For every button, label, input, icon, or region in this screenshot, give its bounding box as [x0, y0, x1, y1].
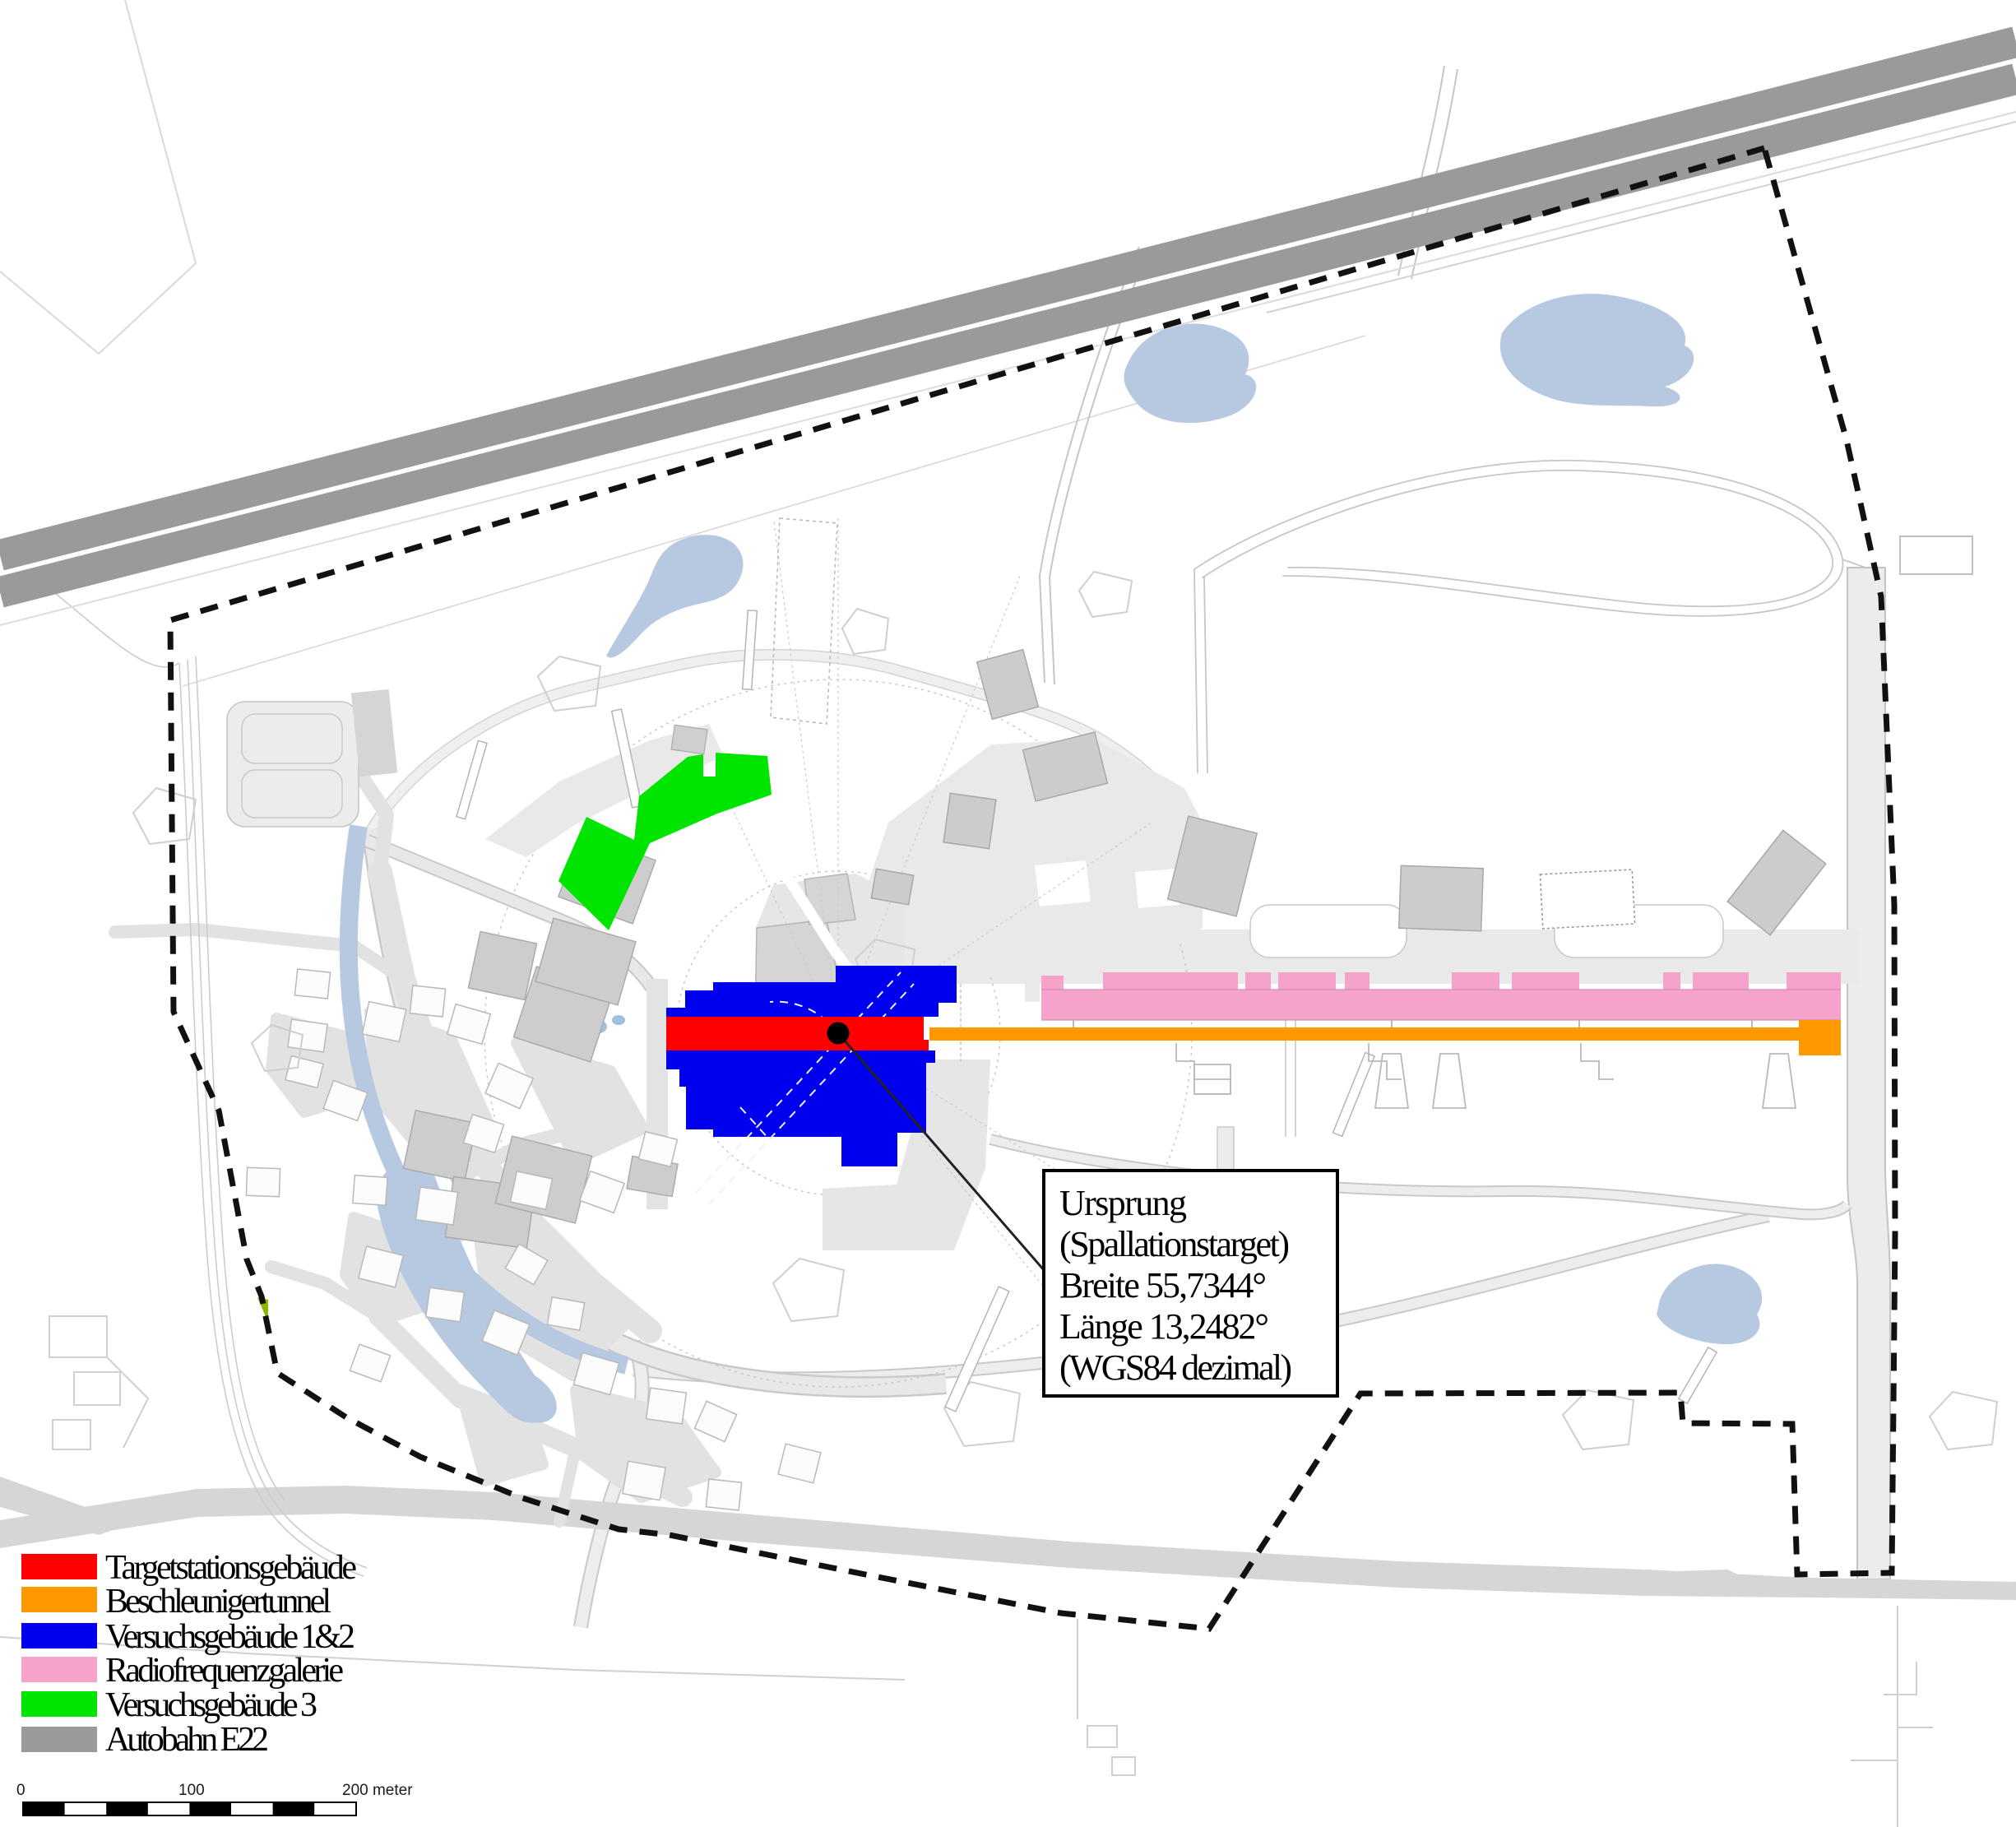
svg-text:Länge 13,2482°: Länge 13,2482° [1059, 1306, 1269, 1347]
svg-text:0: 0 [16, 1782, 25, 1799]
svg-text:Targetstationsgebäude: Targetstationsgebäude [105, 1549, 357, 1587]
svg-text:Breite 55,7344°: Breite 55,7344° [1059, 1265, 1267, 1305]
svg-text:Radiofrequenzgalerie: Radiofrequenzgalerie [105, 1652, 344, 1690]
svg-text:Autobahn E22: Autobahn E22 [105, 1721, 269, 1759]
svg-text:Ursprung: Ursprung [1059, 1183, 1187, 1223]
svg-text:200 meter: 200 meter [342, 1782, 413, 1799]
svg-text:Versuchsgebäude 3: Versuchsgebäude 3 [105, 1686, 317, 1724]
svg-text:(WGS84 dezimal): (WGS84 dezimal) [1059, 1347, 1292, 1388]
svg-text:(Spallationstarget): (Spallationstarget) [1059, 1224, 1290, 1264]
svg-text:Beschleunigertunnel: Beschleunigertunnel [105, 1583, 331, 1621]
svg-text:100: 100 [178, 1782, 205, 1799]
svg-text:Versuchsgebäude 1&2: Versuchsgebäude 1&2 [105, 1618, 355, 1656]
